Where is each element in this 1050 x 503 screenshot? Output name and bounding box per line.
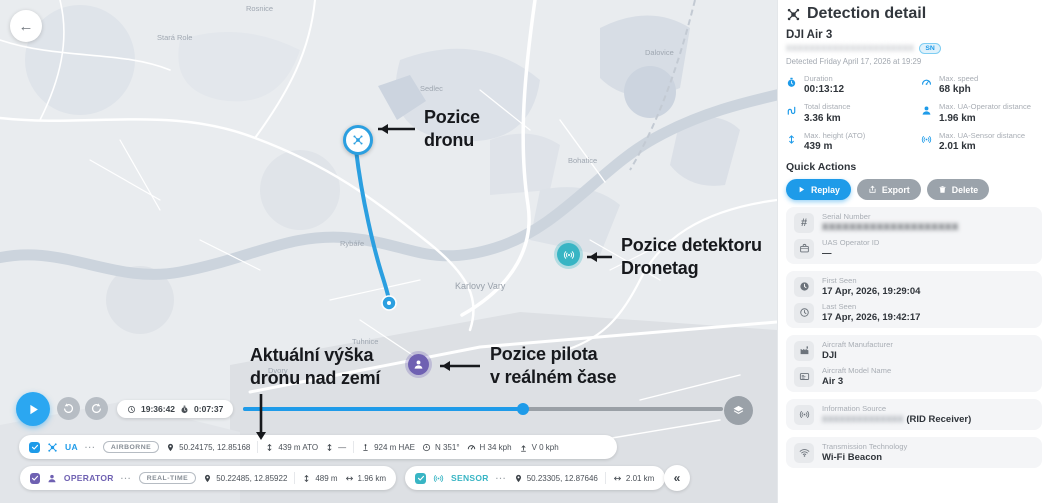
speedometer-icon <box>921 77 932 88</box>
information-source-row: Information Source XXXXXXXXXXXXXX (RID R… <box>794 404 1034 425</box>
aircraft-card: Aircraft Manufacturer DJI Aircraft Model… <box>786 335 1042 392</box>
clock-icon <box>794 303 814 323</box>
drone-icon <box>47 442 58 453</box>
sensor-more-menu[interactable]: ··· <box>496 474 507 483</box>
signal-icon <box>921 134 932 145</box>
playback-elapsed-time: 0:07:37 <box>194 404 223 414</box>
sensor-coordinates: 50.23305, 12.87646 <box>514 474 598 483</box>
panel-title-row: Detection detail <box>786 5 1042 23</box>
clock-icon <box>127 405 136 414</box>
ua-height-hae: 924 m HAE <box>361 443 415 452</box>
route-icon <box>786 105 797 116</box>
annotation-detector-position: Pozice detektoruDronetag <box>621 234 762 280</box>
card-icon <box>794 367 814 387</box>
transmission-card: Transmission Technology Wi-Fi Beacon <box>786 437 1042 468</box>
layers-icon <box>732 404 745 417</box>
factory-icon <box>794 341 814 361</box>
stat-max-speed: Max. speed68 kph <box>921 74 1041 95</box>
first-seen-row: First Seen 17 Apr, 2026, 19:29:04 <box>794 276 1034 297</box>
timeline-slider[interactable] <box>243 407 723 411</box>
updown-arrow-icon <box>302 474 311 483</box>
ua-heading: N 351° <box>422 443 460 452</box>
stat-total-distance: Total distance3.36 km <box>786 102 921 123</box>
forward-button[interactable] <box>85 397 108 420</box>
ua-coordinates: 50.24175, 12.85168 <box>166 443 250 452</box>
sensor-telemetry-bar: SENSOR ··· 50.23305, 12.87646 2.01 km <box>405 466 665 490</box>
stat-max-ua-sensor-distance: Max. UA-Sensor distance2.01 km <box>921 131 1041 152</box>
leftright-arrow-icon <box>345 474 354 483</box>
back-button[interactable]: ← <box>10 10 42 42</box>
uas-operator-id-row: UAS Operator ID — <box>794 238 1034 259</box>
sensor-checkbox[interactable] <box>415 473 426 484</box>
stopwatch-icon <box>180 405 189 414</box>
operator-label: OPERATOR <box>64 473 114 483</box>
rewind-button[interactable] <box>57 397 80 420</box>
map-place-label: Sedlec <box>420 84 443 93</box>
stat-max-ua-operator-distance: Max. UA-Operator distance1.96 km <box>921 102 1041 123</box>
stats-grid: Duration00:13:12 Max. speed68 kph Total … <box>786 74 1042 152</box>
briefcase-icon <box>794 239 814 259</box>
quick-actions-heading: Quick Actions <box>786 161 1042 173</box>
play-button[interactable] <box>16 392 50 426</box>
replay-button[interactable]: Replay <box>786 179 851 200</box>
stopwatch-icon <box>786 77 797 88</box>
person-icon <box>921 105 932 116</box>
playback-time-display: 19:36:42 0:07:37 <box>117 400 233 418</box>
collapse-bars-button[interactable]: « <box>664 465 690 491</box>
sn-badge: SN <box>919 43 940 54</box>
chevron-left-double-icon: « <box>674 471 681 485</box>
ua-height-secondary: — <box>325 443 346 452</box>
annotation-current-height: Aktuální výškadronu nad zemí <box>250 344 380 390</box>
detector-marker[interactable] <box>557 243 580 266</box>
ua-label: UA <box>65 442 78 452</box>
map-place-label: Rybáře <box>340 239 364 248</box>
delete-button[interactable]: Delete <box>927 179 989 200</box>
pilot-marker[interactable] <box>408 354 429 375</box>
info-source-redacted: XXXXXXXXXXXXXX <box>822 415 904 424</box>
serial-number-redacted: XXXXXXXXXXXXXXXXXXXXXX <box>786 44 914 53</box>
updown-arrow-icon <box>325 443 334 452</box>
rotate-ccw-icon <box>62 402 75 415</box>
app-window: Rosnice Stará Role Dalovice Sedlec Rybář… <box>0 0 1050 503</box>
page-title: Detection detail <box>807 5 926 23</box>
play-icon <box>26 402 41 417</box>
map-place-label: Bohatice <box>568 156 597 165</box>
stat-max-height: Max. height (ATO)439 m <box>786 131 921 152</box>
hash-icon: # <box>794 213 814 233</box>
leftright-arrow-icon <box>613 474 622 483</box>
sensor-label: SENSOR <box>451 473 489 483</box>
map-place-label: Karlovy Vary <box>455 281 505 291</box>
person-icon <box>47 473 57 484</box>
serial-number-row: # Serial Number XXXXXXXXXXXXXXXXXXXX <box>794 212 1034 233</box>
play-icon <box>797 185 806 194</box>
annotation-pilot-position: Pozice pilotav reálném čase <box>490 343 616 389</box>
clock-filled-icon <box>794 277 814 297</box>
ua-height-ato: 439 m ATO <box>265 443 318 452</box>
timeline-progress <box>243 407 523 411</box>
operator-height: 489 m <box>302 474 337 483</box>
operator-status-badge: REAL-TIME <box>139 472 197 484</box>
operator-coordinates: 50.22485, 12.85922 <box>203 474 287 483</box>
operator-more-menu[interactable]: ··· <box>121 474 132 483</box>
updown-arrow-icon <box>265 443 274 452</box>
operator-checkbox[interactable] <box>30 473 40 484</box>
playback-current-time: 19:36:42 <box>141 404 175 414</box>
map-place-label: Stará Role <box>157 33 192 42</box>
ua-status-badge: AIRBORNE <box>103 441 159 453</box>
back-arrow-icon: ← <box>19 18 34 35</box>
signal-icon <box>794 405 814 425</box>
stat-duration: Duration00:13:12 <box>786 74 921 95</box>
ua-checkbox[interactable] <box>29 442 40 453</box>
wifi-icon <box>794 443 814 463</box>
map-place-label: Rosnice <box>246 4 273 13</box>
speedometer-icon <box>467 443 476 452</box>
trash-icon <box>938 185 947 194</box>
map-place-label: Dalovice <box>645 48 674 57</box>
detection-detail-panel: Detection detail DJI Air 3 XXXXXXXXXXXXX… <box>777 0 1050 503</box>
ua-vertical-speed: V 0 kph <box>519 443 559 452</box>
serial-row: XXXXXXXXXXXXXXXXXXXXXX SN <box>786 43 1042 54</box>
detected-timestamp: Detected Friday April 17, 2026 at 19:29 <box>786 57 1042 66</box>
ua-telemetry-bar: UA ··· AIRBORNE 50.24175, 12.85168 439 m… <box>19 435 617 459</box>
map-canvas[interactable]: Rosnice Stará Role Dalovice Sedlec Rybář… <box>0 0 777 503</box>
identity-card: # Serial Number XXXXXXXXXXXXXXXXXXXX UAS… <box>786 207 1042 264</box>
pin-icon <box>166 443 175 452</box>
drone-icon <box>786 7 801 22</box>
information-source-card: Information Source XXXXXXXXXXXXXX (RID R… <box>786 399 1042 430</box>
drone-marker[interactable] <box>343 125 373 155</box>
last-seen-row: Last Seen 17 Apr, 2026, 19:42:17 <box>794 302 1034 323</box>
rotate-cw-icon <box>90 402 103 415</box>
export-icon <box>868 185 877 194</box>
check-icon <box>31 443 39 451</box>
export-button[interactable]: Export <box>857 179 921 200</box>
serial-value-redacted: XXXXXXXXXXXXXXXXXXXX <box>822 222 959 233</box>
annotation-drone-position: Pozicedronu <box>424 106 480 152</box>
seen-card: First Seen 17 Apr, 2026, 19:29:04 Last S… <box>786 271 1042 328</box>
compass-icon <box>422 443 431 452</box>
check-icon <box>31 474 39 482</box>
operator-distance: 1.96 km <box>345 474 386 483</box>
signal-icon <box>433 473 444 484</box>
pin-icon <box>514 474 523 483</box>
quick-actions-row: Replay Export Delete <box>786 179 1042 200</box>
pin-icon <box>203 474 212 483</box>
ua-more-menu[interactable]: ··· <box>85 443 96 452</box>
operator-telemetry-bar: OPERATOR ··· REAL-TIME 50.22485, 12.8592… <box>20 466 396 490</box>
sensor-distance: 2.01 km <box>613 474 654 483</box>
manufacturer-row: Aircraft Manufacturer DJI <box>794 340 1034 361</box>
aircraft-name: DJI Air 3 <box>786 29 1042 41</box>
vertical-speed-icon <box>519 443 528 452</box>
updown-arrow-icon <box>786 134 797 145</box>
ua-horizontal-speed: H 34 kph <box>467 443 512 452</box>
transmission-row: Transmission Technology Wi-Fi Beacon <box>794 442 1034 463</box>
check-icon <box>417 474 425 482</box>
map-layers-button[interactable] <box>724 396 753 425</box>
model-row: Aircraft Model Name Air 3 <box>794 366 1034 387</box>
altitude-icon <box>361 443 370 452</box>
timeline-knob[interactable] <box>517 403 529 415</box>
